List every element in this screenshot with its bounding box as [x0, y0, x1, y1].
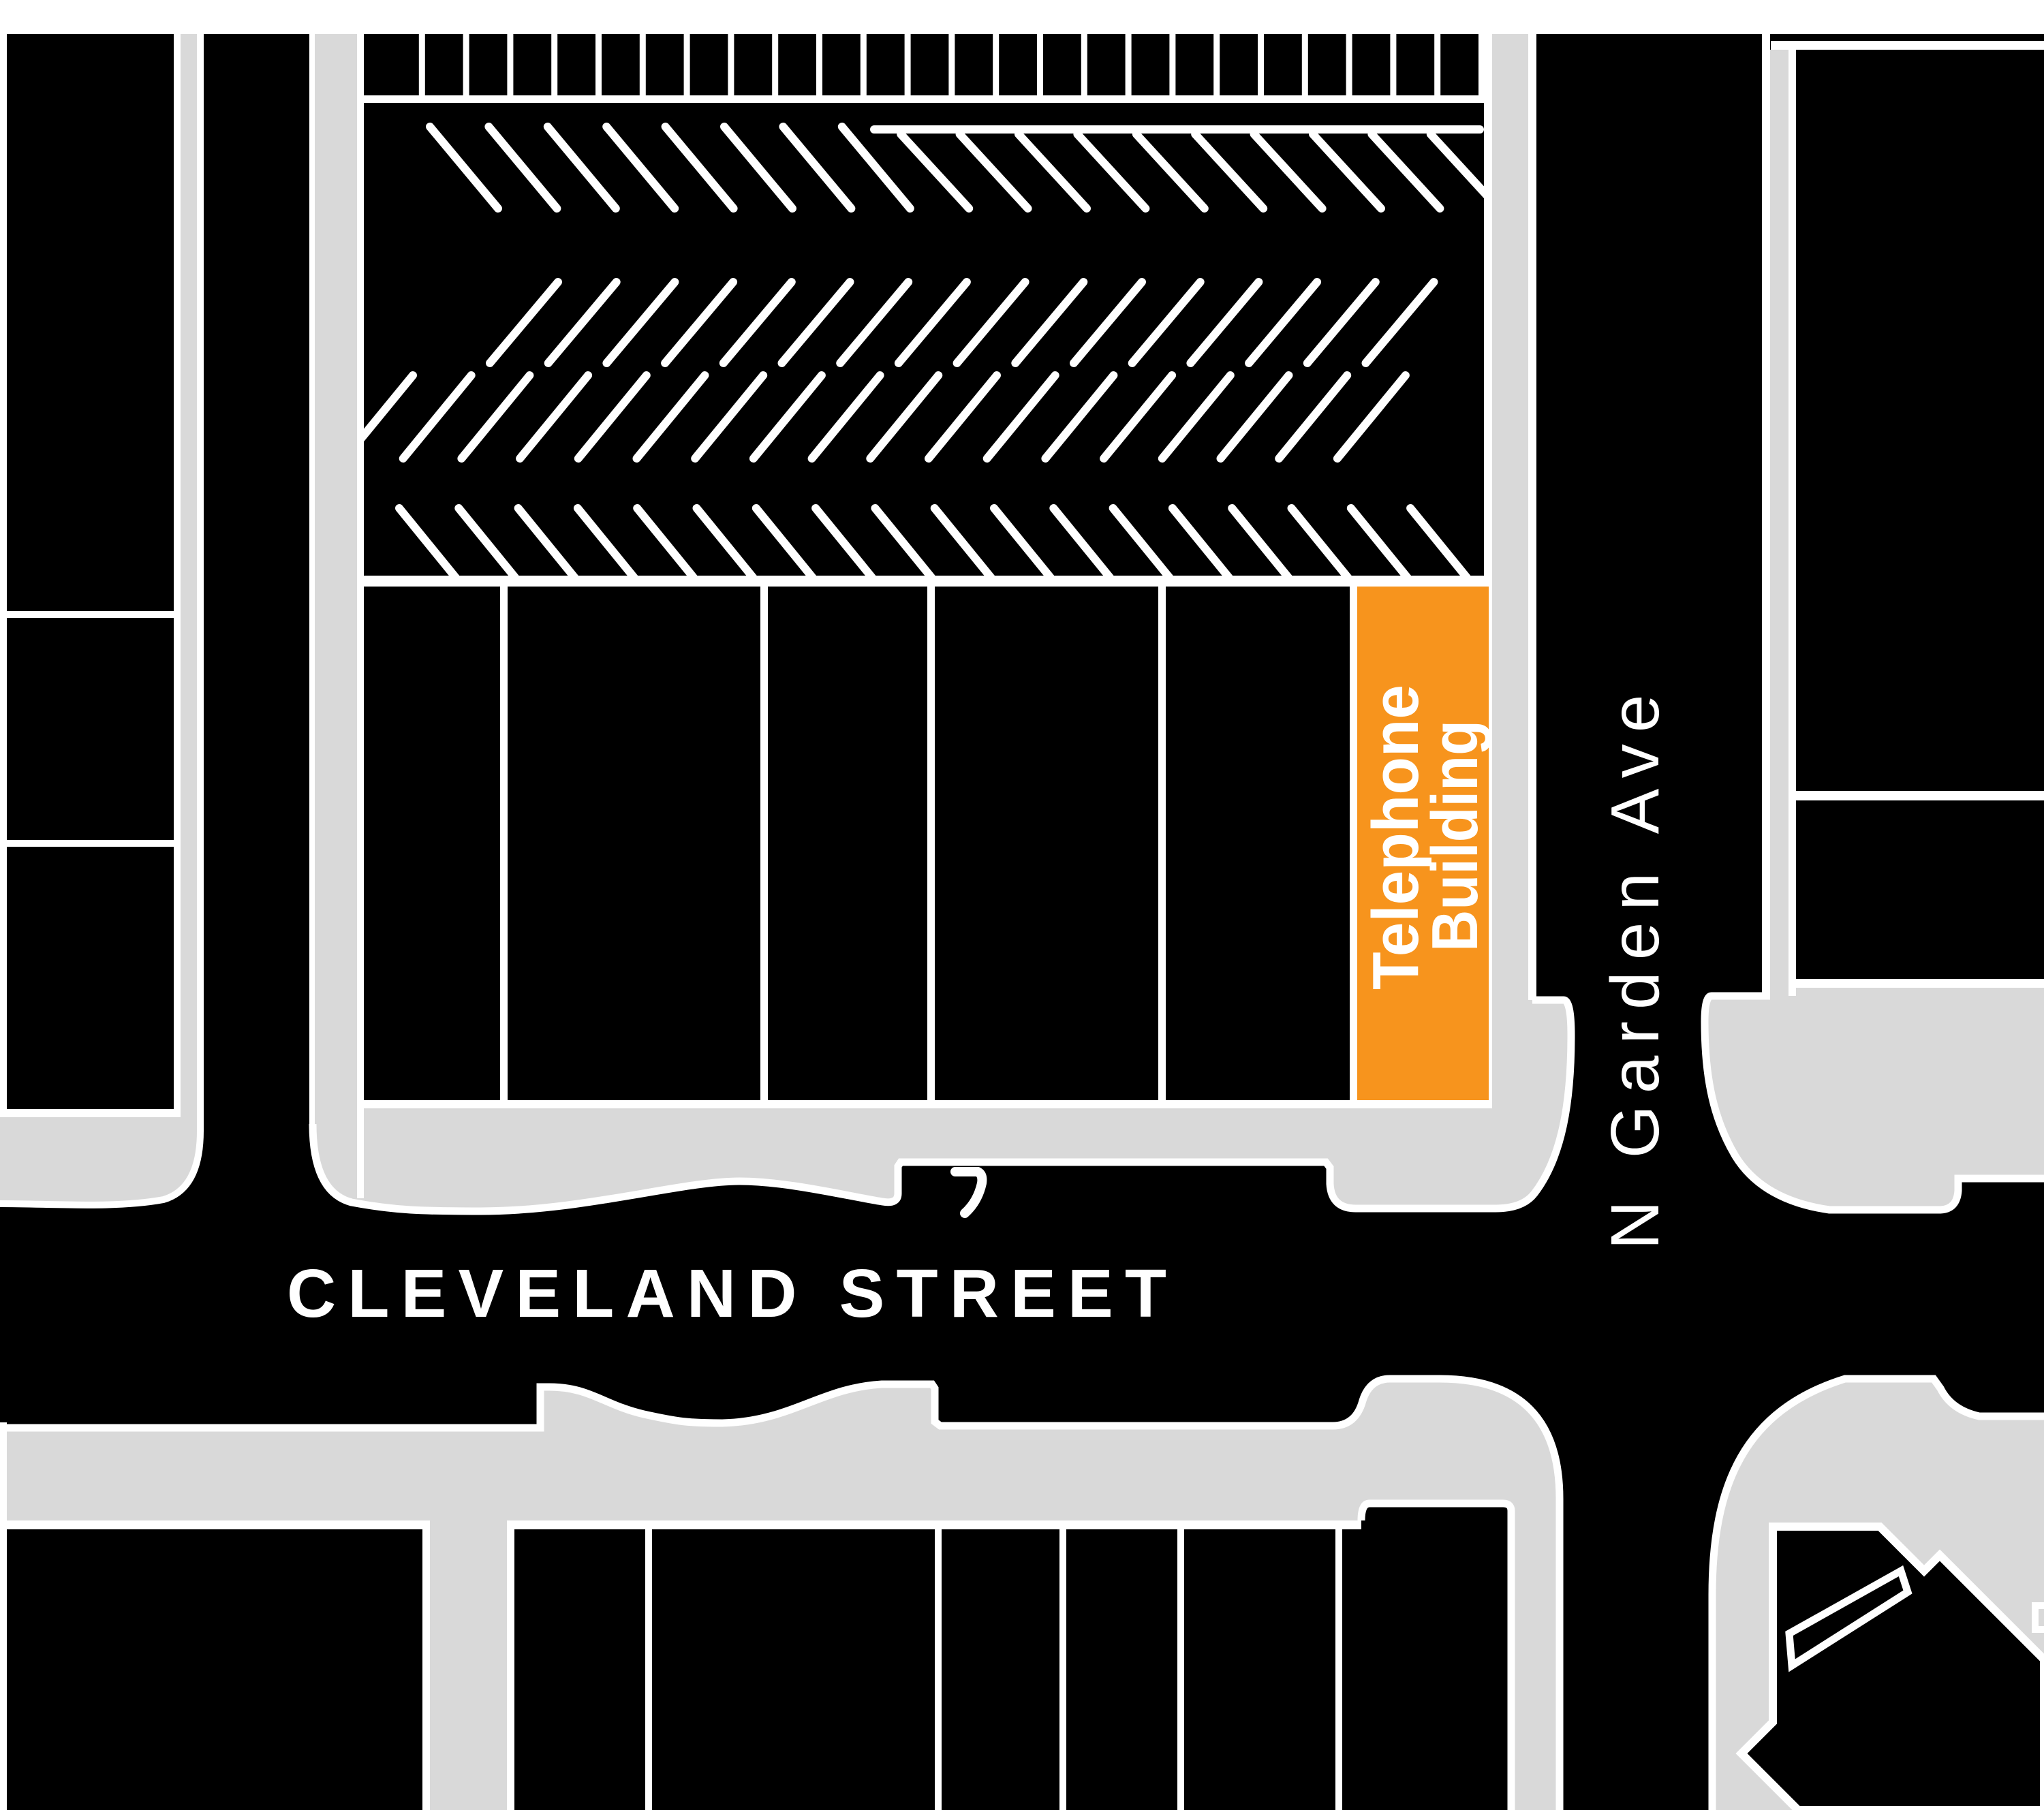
svg-text:Building: Building: [1419, 720, 1491, 952]
svg-text:CLEVELAND STREET: CLEVELAND STREET: [287, 1255, 1166, 1332]
